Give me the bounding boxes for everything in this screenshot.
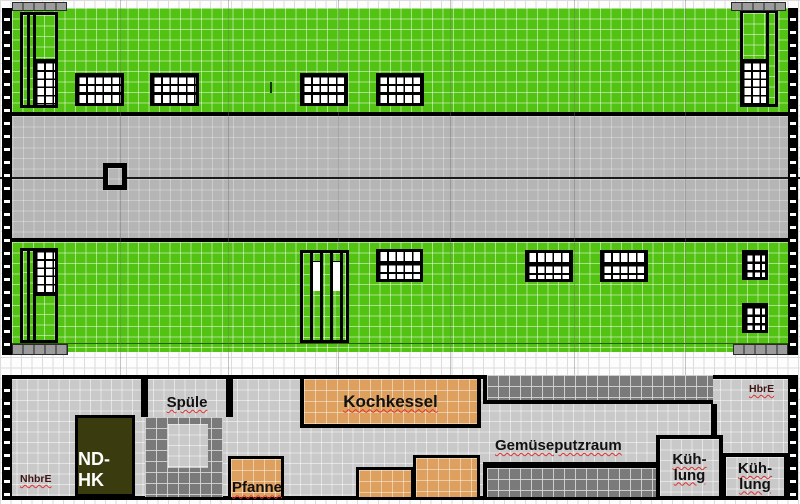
annotation-nhbre: NhbrE (20, 474, 52, 485)
sidewalk-strip (12, 344, 68, 355)
door-slat-bar (320, 253, 323, 340)
room-label-kuehlung-left: Küh- lung (672, 452, 706, 484)
tiled-strip-top (483, 375, 713, 404)
equipment-block (413, 455, 480, 500)
annotation-hbre: HbrE (749, 384, 774, 395)
door-rail (36, 293, 55, 296)
room-label-gemueseputzraum: Gemüseputzraum (495, 437, 622, 454)
floor-plan-canvas[interactable]: Spüle ND-HK NhbrE Pfanne Kochkessel HbrE… (0, 0, 800, 504)
door-glass-pane (313, 261, 320, 291)
grid-column-line (574, 0, 575, 375)
grid-column-line (228, 0, 229, 375)
door-glass-panes (743, 62, 766, 104)
grid-column-line (685, 0, 686, 375)
tiled-strip-bottom (483, 468, 657, 497)
boundary-marker-right-lower (788, 379, 798, 496)
door-top-right (740, 10, 778, 107)
boundary-marker-left (2, 8, 12, 355)
room-label-spuele: Spüle (167, 395, 208, 411)
kuehlung-room-left: Küh- lung (656, 435, 723, 500)
double-door (300, 250, 349, 343)
room-label-spuele-wrap: Spüle (148, 391, 226, 415)
window (376, 73, 424, 106)
sidewalk-strip (12, 2, 67, 11)
grid-column-line (450, 0, 451, 375)
door-glass-panes (36, 251, 55, 293)
ndhk-unit: ND-HK (75, 415, 135, 497)
window (75, 73, 124, 106)
door-slat-bar (27, 251, 30, 340)
window (525, 250, 573, 282)
sink-counter-opening (168, 424, 208, 468)
survey-tick (270, 82, 272, 93)
equipment-block (356, 467, 414, 500)
pfanne-unit: Pfanne (228, 456, 284, 500)
door-slat-bar (27, 15, 30, 105)
window (300, 73, 348, 106)
door-bottom-left (20, 248, 58, 343)
wall-hbre-left (711, 404, 717, 438)
window (150, 73, 199, 106)
room-label-kochkessel: Kochkessel (343, 393, 438, 411)
door-slat-bar (766, 13, 769, 104)
road-square-marker (103, 163, 127, 190)
sidewalk-strip (733, 344, 788, 355)
door-top-left (20, 12, 58, 108)
room-label-ndhk: ND-HK (78, 449, 132, 494)
sidewalk-strip (731, 2, 786, 11)
small-grid-window (742, 250, 768, 280)
room-label-gemuese-wrap: Gemüseputzraum (495, 437, 645, 457)
window (376, 249, 423, 282)
wall-stub-spuele-left (141, 379, 148, 417)
door-slat-bar (340, 253, 343, 340)
door-glass-pane (333, 261, 340, 291)
small-grid-window (742, 303, 768, 333)
room-label-pfanne: Pfanne (231, 480, 283, 497)
wall-stub-spuele-right (226, 379, 233, 417)
boundary-marker-left-lower (2, 379, 12, 496)
door-glass-panes (36, 62, 55, 105)
kuehlung-room-right: Küh- lung (722, 453, 788, 500)
kochkessel-unit: Kochkessel (300, 375, 481, 428)
room-label-kuehlung-right: Küh- lung (738, 461, 772, 493)
boundary-marker-right (788, 8, 798, 355)
window (600, 250, 648, 282)
lower-band-row-line (12, 343, 788, 344)
